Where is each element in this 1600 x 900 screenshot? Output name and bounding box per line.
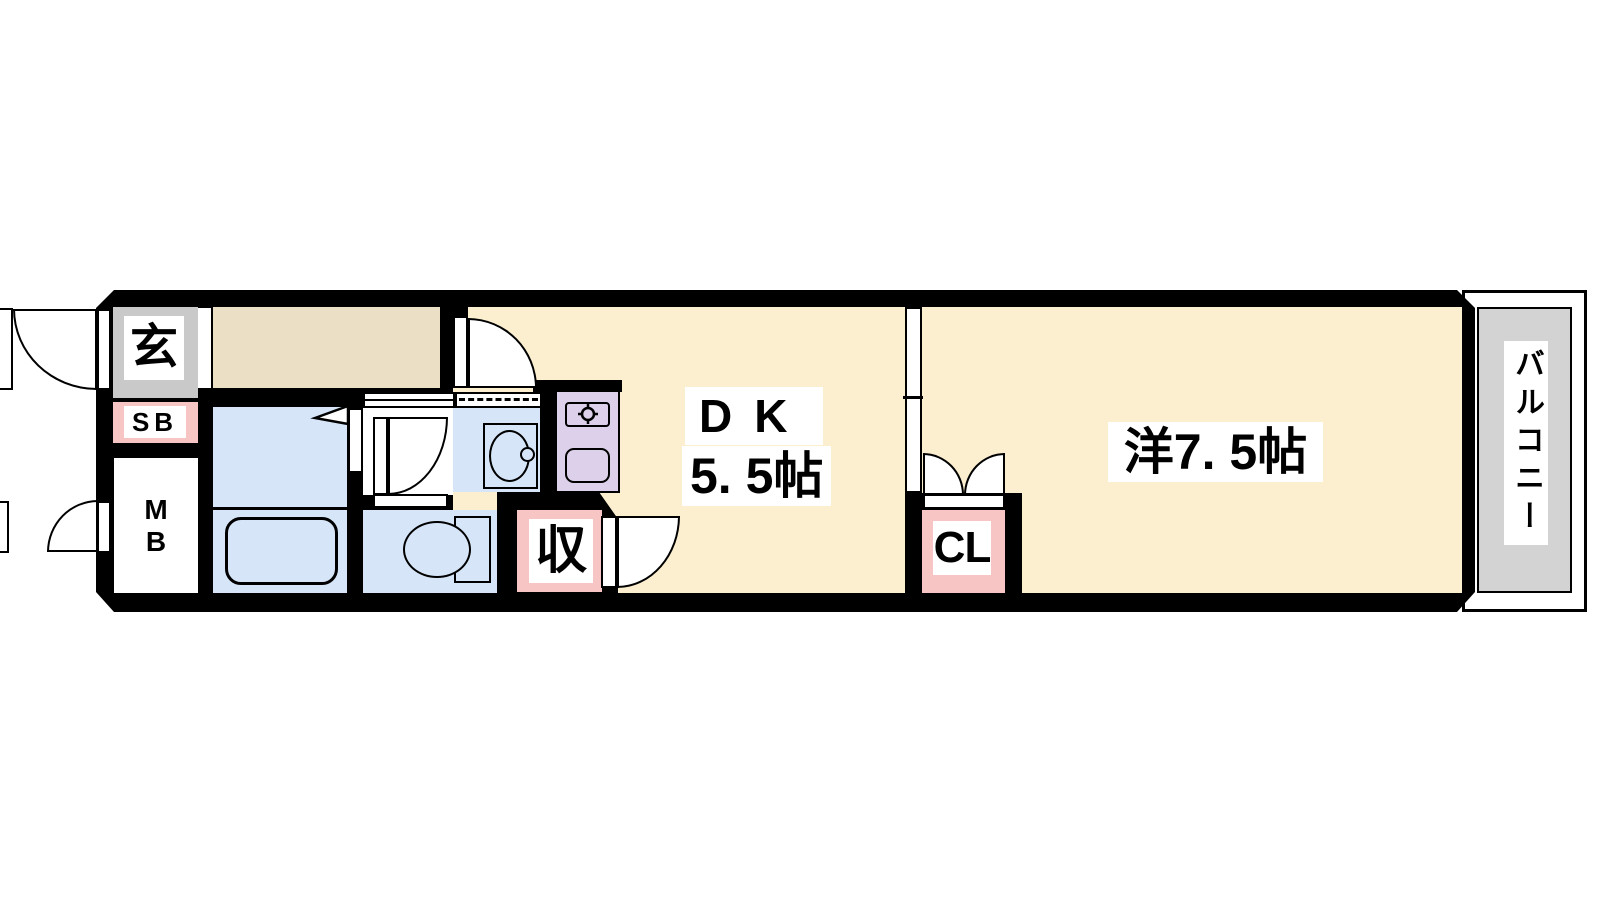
meter-box-label-b: B xyxy=(146,526,166,558)
dk-label-group: DK 5. 5帖 xyxy=(682,387,831,506)
dk-size-label: 5. 5帖 xyxy=(682,446,831,506)
entrance-label: 玄 xyxy=(124,316,184,380)
stove-burner-icon xyxy=(578,404,598,424)
dk-name-label: DK xyxy=(685,387,823,445)
meter-box-label: M B xyxy=(114,458,198,593)
washroom-folding-door-triangle xyxy=(315,406,348,424)
floorplan-canvas: バルコニー 収 CL xyxy=(0,0,1600,900)
western-room-label: 洋7. 5帖 xyxy=(1108,422,1323,482)
shoe-box-label: SB xyxy=(124,406,186,438)
meter-box-label-m: M xyxy=(144,494,167,526)
